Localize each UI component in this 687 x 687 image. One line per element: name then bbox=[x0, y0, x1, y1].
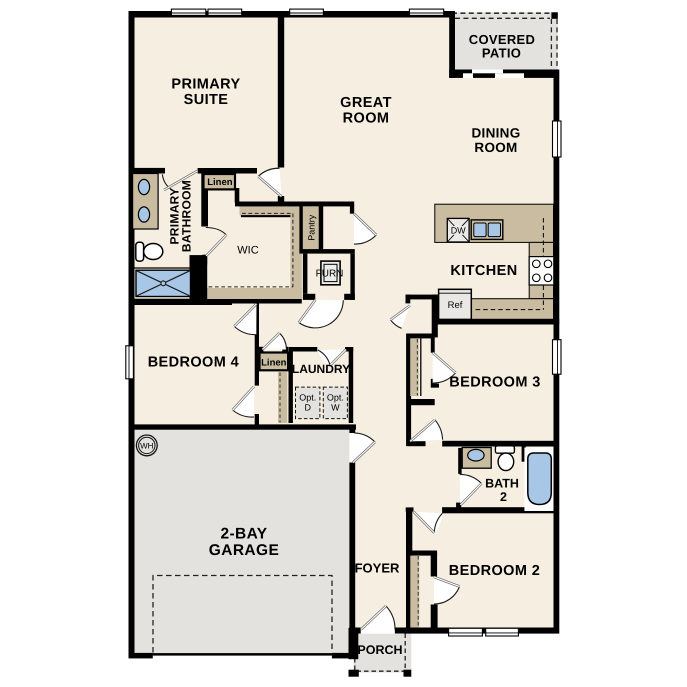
svg-text:Linen: Linen bbox=[207, 177, 233, 188]
svg-text:GREAT: GREAT bbox=[340, 95, 392, 111]
svg-text:FOYER: FOYER bbox=[355, 561, 400, 576]
svg-text:ROOM: ROOM bbox=[474, 140, 517, 155]
svg-text:Linen: Linen bbox=[261, 358, 287, 369]
svg-text:D: D bbox=[304, 403, 311, 413]
svg-text:BEDROOM 2: BEDROOM 2 bbox=[449, 563, 540, 579]
svg-text:DW: DW bbox=[451, 226, 466, 236]
svg-text:W: W bbox=[331, 403, 340, 413]
svg-text:ROOM: ROOM bbox=[343, 110, 390, 126]
svg-text:WH: WH bbox=[140, 441, 154, 450]
svg-text:Pantry: Pantry bbox=[307, 214, 317, 241]
svg-text:DINING: DINING bbox=[471, 126, 520, 141]
svg-text:2: 2 bbox=[500, 490, 507, 504]
svg-text:GARAGE: GARAGE bbox=[209, 542, 279, 559]
svg-text:BEDROOM 4: BEDROOM 4 bbox=[148, 355, 239, 371]
svg-text:PORCH: PORCH bbox=[357, 643, 402, 657]
svg-text:Opt.: Opt. bbox=[299, 393, 316, 403]
svg-text:Opt.: Opt. bbox=[327, 393, 344, 403]
svg-text:PATIO: PATIO bbox=[482, 45, 521, 60]
svg-text:KITCHEN: KITCHEN bbox=[450, 263, 517, 279]
svg-text:Ref: Ref bbox=[448, 300, 463, 311]
svg-text:SUITE: SUITE bbox=[184, 92, 229, 108]
svg-text:WIC: WIC bbox=[237, 245, 258, 257]
svg-text:2-BAY: 2-BAY bbox=[220, 526, 267, 543]
svg-text:FURN: FURN bbox=[316, 269, 344, 280]
svg-text:PRIMARY: PRIMARY bbox=[171, 77, 240, 93]
svg-text:LAUNDRY: LAUNDRY bbox=[292, 362, 350, 376]
svg-text:BATHROOM: BATHROOM bbox=[180, 180, 194, 252]
svg-text:BATH: BATH bbox=[485, 477, 519, 491]
svg-text:BEDROOM 3: BEDROOM 3 bbox=[449, 375, 540, 391]
